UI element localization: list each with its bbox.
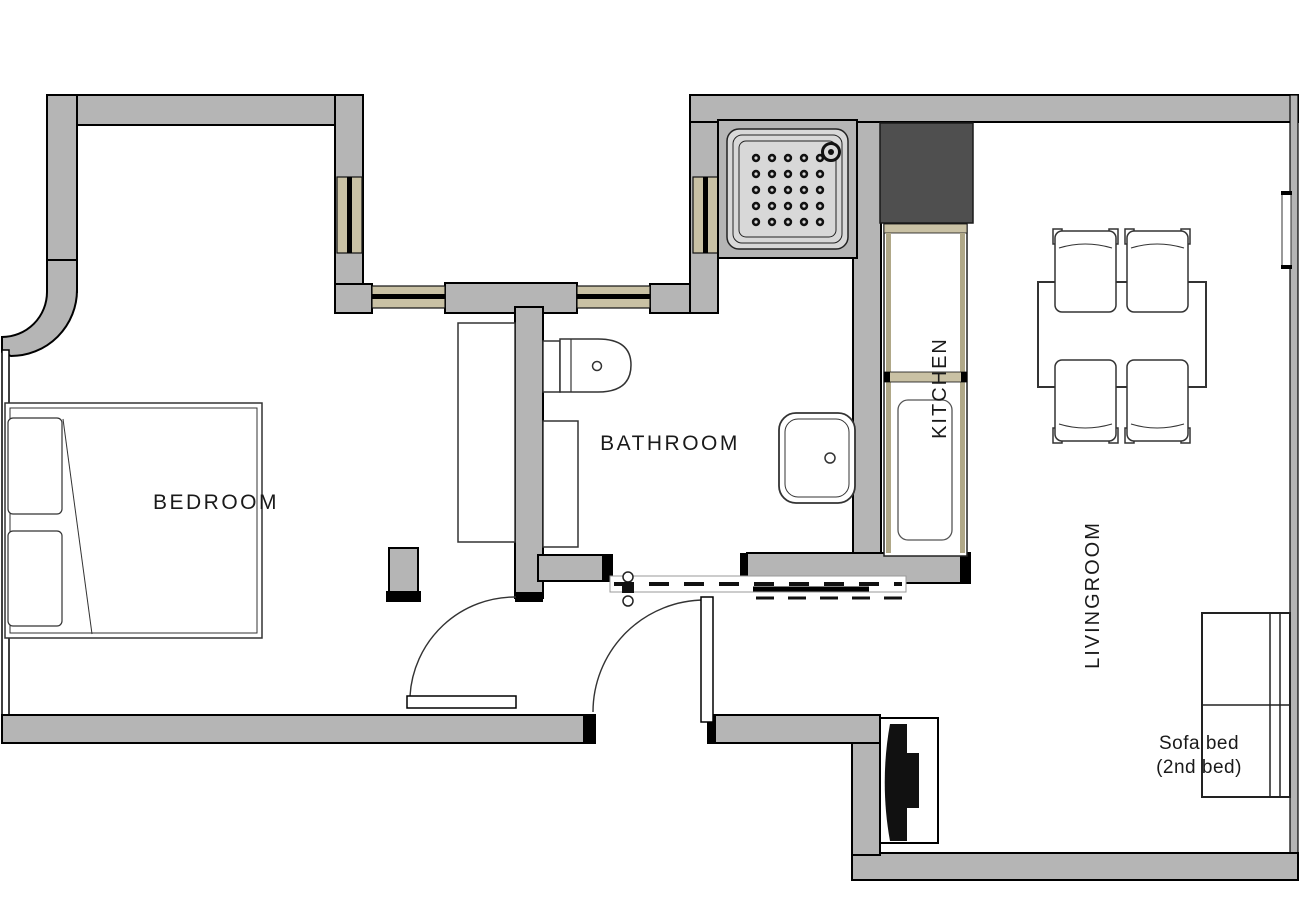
wall-t-bar (445, 283, 577, 313)
wall-corner-left (335, 284, 372, 313)
bathroom-label: BATHROOM (600, 432, 740, 455)
bathroom-cabinet (543, 421, 578, 547)
door-roller (623, 596, 633, 606)
tv-unit (880, 718, 938, 843)
door-guide (622, 582, 634, 593)
window-band-left (372, 286, 445, 308)
floor-plan-canvas: BEDROOM BATHROOM KITCHEN LIVINGROOM Sofa… (0, 0, 1300, 900)
doors (407, 572, 906, 722)
wall-bedroom-bottom (2, 715, 595, 743)
wall-stub (389, 548, 418, 593)
wall-cap (583, 715, 595, 743)
counter-top-edge (884, 224, 967, 233)
window-bay-right (693, 177, 718, 253)
wall-entry-right (708, 715, 880, 743)
wall-top-right (690, 95, 1298, 122)
shower (718, 120, 857, 258)
washbasin (779, 413, 855, 503)
dining-chair (1053, 229, 1118, 312)
wall-left-curve (2, 260, 77, 356)
shower-drain-grid (748, 150, 826, 228)
window-right-wall (1281, 191, 1292, 269)
wall-bottom-right (852, 853, 1298, 880)
counter-divider (884, 372, 967, 382)
window-band-right (577, 286, 650, 308)
counter-edge-left (886, 233, 891, 553)
wall-cap (515, 592, 543, 602)
entrance-door (593, 597, 713, 722)
door-roller (623, 572, 633, 582)
wardrobe (458, 323, 515, 542)
wall-cap (960, 553, 970, 583)
wall-bedroom-top (47, 95, 363, 125)
wall-cap (386, 591, 421, 602)
dining-chair (1125, 360, 1190, 443)
toilet (543, 339, 631, 392)
sofa-bed-label-line2: (2nd bed) (1156, 757, 1242, 778)
bedroom-furniture (5, 323, 515, 638)
shower-head-center (828, 149, 834, 155)
tv-bracket (905, 753, 919, 808)
kitchen-label: KITCHEN (929, 337, 951, 439)
wall-step (852, 743, 880, 855)
pillow (8, 418, 62, 514)
bathroom-sliding-door (610, 572, 906, 606)
dining-chair (1053, 360, 1118, 443)
bedroom-label: BEDROOM (153, 491, 279, 514)
pillow (8, 531, 62, 626)
kitchen-appliance-block (880, 123, 973, 223)
bedroom-door (407, 597, 516, 708)
floor-plan: BEDROOM BATHROOM KITCHEN LIVINGROOM Sofa… (0, 0, 1300, 900)
sofa-bed-label-line1: Sofa bed (1159, 733, 1239, 754)
tv-screen (885, 724, 907, 841)
kitchen-units (880, 123, 973, 556)
livingroom-label: LIVINGROOM (1082, 521, 1104, 669)
wall-bath-bottom-left (538, 555, 612, 581)
counter-edge-right (960, 233, 965, 553)
window-bay-left (337, 177, 362, 253)
dining-chair (1125, 229, 1190, 312)
double-bed (5, 403, 262, 638)
